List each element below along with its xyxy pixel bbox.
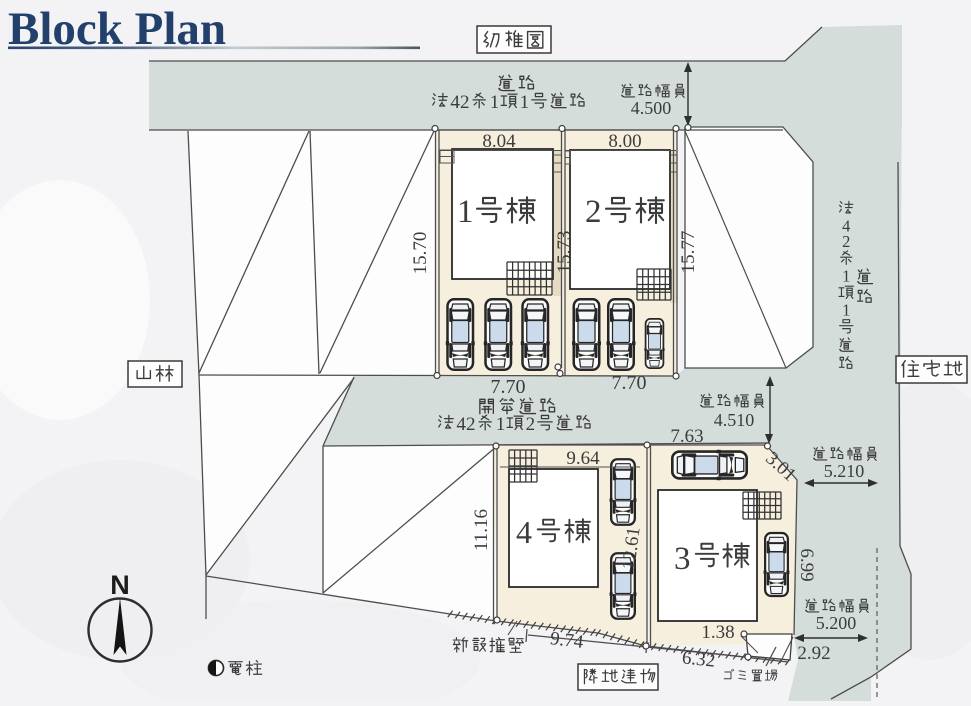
svg-text:1.38: 1.38 bbox=[701, 622, 734, 643]
svg-text:3: 3 bbox=[674, 541, 691, 577]
svg-text:2: 2 bbox=[585, 194, 602, 230]
svg-text:1: 1 bbox=[842, 266, 850, 285]
svg-text:11.16: 11.16 bbox=[471, 509, 492, 551]
svg-text:4: 4 bbox=[516, 514, 532, 550]
svg-text:15.73: 15.73 bbox=[554, 231, 575, 274]
svg-text:2: 2 bbox=[526, 414, 536, 435]
svg-text:42: 42 bbox=[456, 414, 475, 435]
svg-text:9.74: 9.74 bbox=[549, 628, 585, 653]
svg-text:5.210: 5.210 bbox=[824, 461, 865, 481]
svg-text:1: 1 bbox=[457, 194, 474, 230]
svg-text:4.500: 4.500 bbox=[631, 98, 672, 118]
svg-text:1: 1 bbox=[490, 92, 500, 113]
svg-text:1: 1 bbox=[520, 92, 530, 113]
svg-text:7.63: 7.63 bbox=[670, 426, 703, 447]
svg-text:4.510: 4.510 bbox=[714, 410, 755, 430]
svg-text:15.70: 15.70 bbox=[410, 232, 431, 275]
svg-text:7.70: 7.70 bbox=[491, 376, 526, 398]
svg-text:15.77: 15.77 bbox=[678, 231, 699, 274]
svg-text:42: 42 bbox=[450, 92, 469, 113]
svg-text:N: N bbox=[110, 570, 130, 600]
svg-text:8.04: 8.04 bbox=[482, 131, 516, 152]
svg-text:1: 1 bbox=[842, 301, 850, 320]
svg-text:9.64: 9.64 bbox=[566, 448, 600, 469]
svg-text:7.70: 7.70 bbox=[612, 372, 647, 394]
svg-text:8.00: 8.00 bbox=[608, 131, 641, 152]
svg-text:1: 1 bbox=[496, 414, 506, 435]
svg-text:2: 2 bbox=[842, 232, 850, 251]
svg-text:6.32: 6.32 bbox=[681, 647, 716, 671]
svg-text:5.200: 5.200 bbox=[816, 613, 857, 633]
svg-text:6.99: 6.99 bbox=[796, 548, 817, 581]
svg-text:2.92: 2.92 bbox=[797, 643, 830, 664]
